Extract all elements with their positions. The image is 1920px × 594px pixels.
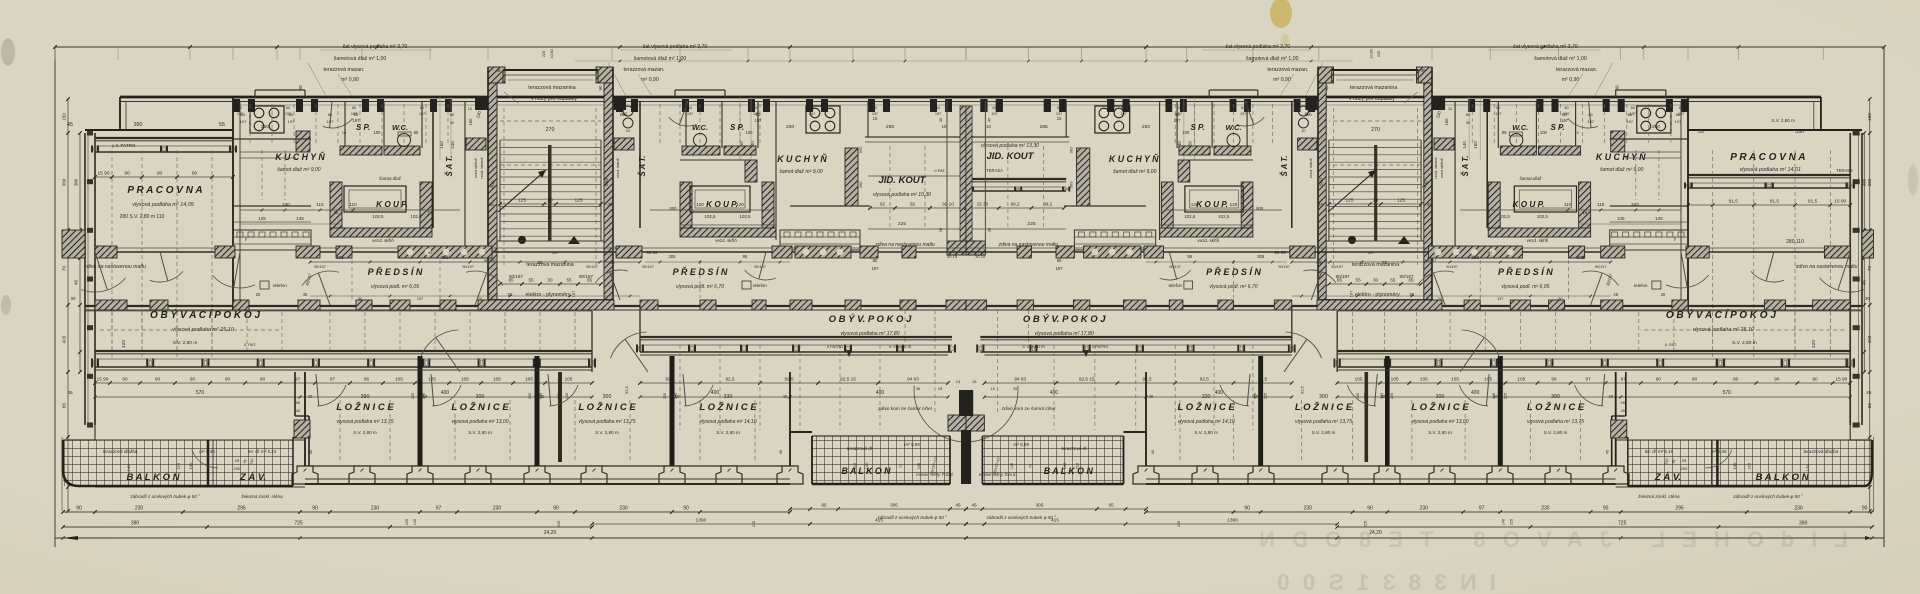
- svg-text:55: 55: [528, 278, 534, 283]
- svg-text:125: 125: [518, 198, 526, 204]
- svg-text:140: 140: [674, 393, 678, 399]
- svg-text:140: 140: [1805, 464, 1810, 471]
- svg-text:94 93: 94 93: [1014, 377, 1026, 382]
- svg-text:35: 35: [1013, 387, 1017, 391]
- svg-text:TERASA: TERASA: [1836, 168, 1853, 173]
- svg-text:P R A C O V N A: P R A C O V N A: [1730, 152, 1805, 163]
- svg-text:15: 15: [990, 386, 995, 391]
- svg-text:vlysová podlaha m² 25,10: vlysová podlaha m² 25,10: [172, 327, 233, 333]
- svg-text:90/197: 90/197: [586, 265, 598, 269]
- svg-text:P Ř E D S Í N: P Ř E D S Í N: [368, 266, 423, 277]
- svg-text:90: 90: [225, 377, 231, 382]
- svg-text:110: 110: [349, 202, 357, 207]
- svg-text:y II. PATRO: y II. PATRO: [112, 143, 136, 148]
- svg-text:115: 115: [316, 202, 324, 207]
- svg-text:140: 140: [1492, 393, 1496, 399]
- svg-text:L O Ž N I C E: L O Ž N I C E: [578, 401, 636, 413]
- svg-text:45: 45: [67, 390, 73, 396]
- svg-text:200: 200: [1681, 466, 1688, 471]
- svg-text:45: 45: [1621, 409, 1625, 413]
- svg-text:15: 15: [956, 379, 961, 384]
- svg-text:70: 70: [1867, 266, 1872, 272]
- svg-text:102,5: 102,5: [373, 214, 385, 219]
- svg-text:IN3831S00: IN3831S00: [1264, 569, 1496, 594]
- svg-text:telefon: telefon: [1168, 283, 1182, 288]
- svg-text:225: 225: [405, 519, 409, 525]
- svg-text:285: 285: [1040, 124, 1048, 130]
- svg-text:200: 200: [234, 466, 241, 471]
- svg-text:90/197: 90/197: [314, 265, 326, 269]
- svg-text:80: 80: [450, 112, 455, 117]
- svg-text:S.V. 2,80 m: S.V. 2,80 m: [1732, 340, 1757, 346]
- svg-text:10: 10: [342, 130, 347, 135]
- svg-text:80: 80: [873, 258, 878, 263]
- svg-text:65: 65: [609, 260, 615, 265]
- svg-text:400: 400: [711, 390, 720, 396]
- svg-text:140: 140: [1732, 462, 1737, 469]
- svg-text:560: 560: [604, 178, 610, 186]
- svg-text:90: 90: [598, 85, 603, 91]
- svg-text:45: 45: [778, 449, 783, 454]
- svg-text:92,5: 92,5: [1299, 385, 1304, 394]
- svg-text:L O Ž N I C E: L O Ž N I C E: [699, 401, 757, 413]
- svg-text:S P.: S P.: [356, 123, 370, 132]
- svg-text:vezd. skříň: vezd. skříň: [1527, 238, 1549, 243]
- svg-text:45: 45: [488, 202, 494, 207]
- svg-text:90/197: 90/197: [1331, 265, 1343, 269]
- svg-text:300: 300: [1319, 394, 1328, 400]
- svg-text:65: 65: [1408, 278, 1414, 283]
- svg-text:305: 305: [336, 255, 344, 260]
- svg-text:135: 135: [296, 216, 304, 221]
- svg-text:ter. dl. m² 5,15: ter. dl. m² 5,15: [1645, 449, 1674, 454]
- svg-text:230: 230: [619, 506, 628, 512]
- svg-text:140: 140: [188, 462, 193, 469]
- svg-text:30 15: 30 15: [947, 254, 958, 259]
- svg-text:40: 40: [308, 394, 313, 399]
- svg-text:v hozy pro odpadky: v hozy pro odpadky: [1349, 96, 1395, 102]
- svg-text:225: 225: [1746, 462, 1751, 469]
- svg-text:140: 140: [1356, 393, 1360, 399]
- svg-text:vlysová podlaha m² 14,10: vlysová podlaha m² 14,10: [1178, 419, 1235, 425]
- svg-text:B A L K O N: B A L K O N: [127, 472, 181, 483]
- svg-text:m² 5,45: m² 5,45: [1711, 449, 1727, 454]
- svg-text:97: 97: [330, 377, 336, 382]
- svg-text:terazzová dl.: terazzová dl.: [1061, 446, 1087, 451]
- svg-text:45: 45: [1582, 210, 1588, 215]
- svg-text:125: 125: [1655, 216, 1663, 221]
- svg-text:250: 250: [1142, 124, 1150, 130]
- svg-text:197: 197: [687, 112, 693, 116]
- svg-text:šamot dlaž m² 9,00: šamot dlaž m² 9,00: [1113, 169, 1156, 175]
- svg-text:100: 100: [1540, 130, 1548, 135]
- svg-text:92: 92: [910, 202, 916, 207]
- svg-text:725: 725: [294, 521, 303, 527]
- svg-text:S.V. 2,80 m: S.V. 2,80 m: [1312, 430, 1336, 435]
- svg-text:rezd. latríně: rezd. latríně: [479, 157, 484, 179]
- svg-text:96: 96: [1551, 377, 1557, 382]
- svg-text:102,5: 102,5: [740, 214, 752, 219]
- svg-text:80: 80: [1466, 112, 1471, 117]
- svg-text:105: 105: [1355, 377, 1363, 382]
- svg-text:45: 45: [1613, 292, 1618, 297]
- svg-text:305: 305: [1577, 255, 1585, 260]
- svg-text:vezd. skříň: vezd. skříň: [715, 238, 737, 243]
- svg-text:105: 105: [1420, 377, 1428, 382]
- svg-text:230: 230: [1304, 506, 1313, 512]
- svg-text:L O Ž N I C E: L O Ž N I C E: [1295, 401, 1353, 413]
- svg-text:380: 380: [74, 178, 79, 186]
- svg-text:80: 80: [428, 251, 432, 255]
- svg-text:90: 90: [76, 506, 82, 512]
- svg-text:90: 90: [1692, 377, 1698, 382]
- svg-text:90/197: 90/197: [1169, 265, 1181, 269]
- svg-text:45: 45: [74, 280, 79, 285]
- svg-text:230: 230: [1420, 506, 1429, 512]
- svg-text:K U C H Y Ň: K U C H Y Ň: [777, 153, 827, 164]
- svg-text:šamot dlaž m² 9,00: šamot dlaž m² 9,00: [1600, 167, 1643, 173]
- svg-text:telefon: telefon: [753, 283, 767, 288]
- svg-text:45: 45: [607, 202, 613, 207]
- svg-text:102,5: 102,5: [705, 214, 717, 219]
- svg-text:zábradlí z ocelových trubek φ: zábradlí z ocelových trubek φ 50 ˜: [129, 494, 200, 499]
- svg-text:285: 285: [886, 124, 894, 130]
- svg-text:92 10: 92 10: [942, 202, 954, 207]
- svg-text:60: 60: [328, 112, 333, 117]
- svg-text:120: 120: [1191, 202, 1199, 207]
- svg-text:197: 197: [240, 119, 247, 124]
- svg-text:m² 5,85: m² 5,85: [1013, 442, 1029, 447]
- svg-text:10: 10: [942, 124, 947, 129]
- svg-text:železná zoskl. stěna: železná zoskl. stěna: [240, 494, 283, 499]
- svg-text:230: 230: [1794, 506, 1803, 512]
- svg-text:K O U P.: K O U P.: [376, 200, 408, 209]
- svg-text:91,5: 91,5: [1770, 199, 1780, 205]
- svg-text:šamotová dlaž m² 1,00: šamotová dlaž m² 1,00: [1534, 56, 1587, 62]
- svg-text:225: 225: [557, 393, 561, 399]
- svg-text:992: 992: [858, 146, 863, 153]
- svg-text:TERASA: TERASA: [986, 168, 1003, 173]
- svg-text:vlysová podlaha m² 13,00: vlysová podlaha m² 13,00: [452, 419, 509, 425]
- svg-text:zdivo kom ze šamot cihel: zdivo kom ze šamot cihel: [877, 406, 933, 412]
- svg-text:10: 10: [468, 106, 473, 111]
- svg-text:197: 197: [1497, 297, 1503, 301]
- svg-text:225: 225: [557, 521, 561, 527]
- svg-text:560: 560: [1319, 178, 1325, 186]
- svg-text:390: 390: [134, 122, 143, 128]
- svg-text:197: 197: [288, 119, 295, 124]
- svg-text:90/197: 90/197: [642, 265, 654, 269]
- svg-text:zdivo na nastavenou maltu: zdivo na nastavenou maltu: [83, 264, 146, 270]
- svg-text:10: 10: [986, 124, 991, 129]
- svg-text:390: 390: [131, 521, 140, 527]
- svg-text:92,5: 92,5: [1142, 377, 1152, 382]
- svg-text:45: 45: [938, 117, 943, 122]
- svg-text:300: 300: [603, 394, 612, 400]
- svg-text:90/197: 90/197: [484, 258, 497, 263]
- svg-text:60: 60: [936, 106, 940, 110]
- svg-text:L O Ž N I C E: L O Ž N I C E: [1527, 401, 1585, 413]
- svg-text:992: 992: [1068, 146, 1073, 153]
- svg-text:25: 25: [235, 458, 240, 463]
- svg-text:60: 60: [1564, 106, 1568, 110]
- svg-text:terazzová mazanina: terazzová mazanina: [526, 262, 573, 268]
- svg-text:100: 100: [1182, 130, 1190, 135]
- svg-text:45: 45: [955, 503, 961, 508]
- svg-text:K O U P.: K O U P.: [1513, 200, 1545, 209]
- svg-text:šamotová dlaž m² 1,00: šamotová dlaž m² 1,00: [1246, 56, 1299, 62]
- svg-text:S.V. 2,80 m: S.V. 2,80 m: [1428, 430, 1452, 435]
- svg-text:L O Ž N I C E: L O Ž N I C E: [1178, 401, 1236, 413]
- svg-text:K U C H Y Ň: K U C H Y Ň: [1596, 151, 1646, 162]
- svg-text:96: 96: [364, 377, 370, 382]
- svg-text:95 65: 95 65: [647, 250, 659, 255]
- svg-text:terazzová dlažba: terazzová dlažba: [103, 449, 138, 454]
- svg-text:L O Ž N I C E: L O Ž N I C E: [1411, 401, 1469, 413]
- svg-text:60: 60: [873, 106, 877, 110]
- svg-text:230: 230: [493, 506, 502, 512]
- svg-text:S.V. 2,80 m: S.V. 2,80 m: [353, 430, 377, 435]
- svg-text:30: 30: [71, 296, 76, 301]
- svg-text:390: 390: [1551, 394, 1560, 400]
- svg-text:197: 197: [991, 112, 997, 116]
- svg-text:60: 60: [1631, 106, 1635, 110]
- svg-text:225: 225: [542, 51, 546, 57]
- svg-text:55: 55: [1698, 129, 1704, 135]
- svg-text:90: 90: [124, 171, 130, 177]
- svg-text:15: 15: [938, 386, 943, 391]
- svg-text:102,5: 102,5: [1499, 214, 1511, 219]
- svg-text:Š A T.: Š A T.: [445, 156, 454, 177]
- svg-text:45: 45: [67, 122, 73, 128]
- svg-text:elektro - plynoměry: elektro - plynoměry: [525, 292, 570, 298]
- svg-text:300: 300: [476, 394, 485, 400]
- svg-text:100: 100: [746, 130, 754, 135]
- svg-text:95: 95: [537, 260, 543, 265]
- svg-text:105: 105: [565, 377, 573, 382]
- svg-text:55: 55: [566, 278, 572, 283]
- svg-text:S.V. 2,80 m: S.V. 2,80 m: [468, 430, 492, 435]
- svg-text:šat vlysová podlaha m² 3,70: šat vlysová podlaha m² 3,70: [643, 44, 708, 50]
- svg-text:20: 20: [547, 198, 553, 204]
- svg-text:15: 15: [873, 116, 878, 121]
- svg-text:400: 400: [1215, 390, 1224, 396]
- svg-text:60: 60: [352, 106, 356, 110]
- svg-text:85: 85: [414, 130, 419, 135]
- svg-text:24,20: 24,20: [544, 530, 557, 536]
- svg-text:140: 140: [1010, 463, 1014, 469]
- svg-text:90: 90: [1733, 377, 1739, 382]
- svg-text:197: 197: [426, 208, 431, 215]
- svg-text:45: 45: [987, 117, 992, 122]
- svg-text:160: 160: [468, 118, 473, 126]
- svg-text:65: 65: [821, 503, 827, 508]
- svg-text:225: 225: [1390, 393, 1394, 399]
- svg-text:60: 60: [241, 112, 246, 117]
- svg-text:II. PAT.: II. PAT.: [244, 342, 256, 347]
- svg-text:135: 135: [1617, 216, 1625, 221]
- svg-text:197: 197: [1626, 119, 1633, 124]
- svg-text:O B Ý V. P O K O J: O B Ý V. P O K O J: [1023, 314, 1106, 325]
- svg-text:LIdOHEL JAVO8 TE8ODN: LIdOHEL JAVO8 TE8ODN: [1242, 527, 1848, 552]
- svg-text:25: 25: [1682, 458, 1687, 463]
- svg-text:90: 90: [312, 506, 318, 512]
- svg-text:197: 197: [1675, 119, 1682, 124]
- svg-text:295: 295: [1675, 506, 1684, 512]
- svg-text:45: 45: [303, 292, 308, 297]
- svg-text:ter. dl. m² 5,15: ter. dl. m² 5,15: [248, 449, 277, 454]
- svg-text:10: 10: [626, 128, 631, 133]
- svg-text:S P.: S P.: [1190, 123, 1204, 132]
- svg-text:S.V. 2,80 m: S.V. 2,80 m: [1544, 430, 1568, 435]
- svg-text:420: 420: [1867, 335, 1872, 343]
- svg-text:10,80: 10,80: [1370, 49, 1374, 59]
- svg-text:W.C.: W.C.: [1225, 123, 1241, 132]
- svg-text:65: 65: [587, 278, 593, 283]
- svg-text:80: 80: [289, 112, 294, 117]
- svg-text:šamotová dlaž m² 1,00: šamotová dlaž m² 1,00: [334, 56, 387, 62]
- svg-text:250: 250: [261, 124, 269, 130]
- svg-text:JID. KOUT: JID. KOUT: [879, 175, 927, 186]
- svg-text:305: 305: [1257, 254, 1265, 259]
- svg-text:125: 125: [258, 216, 266, 221]
- svg-text:95: 95: [1620, 400, 1625, 405]
- svg-text:90/197: 90/197: [1278, 265, 1290, 269]
- svg-text:197: 197: [327, 119, 334, 124]
- svg-text:šamotová dlaž m² 1,00: šamotová dlaž m² 1,00: [634, 56, 687, 62]
- svg-text:zábradlí z ocelových trubek φ: zábradlí z ocelových trubek φ 50 ˜: [1732, 494, 1803, 499]
- svg-text:II. PAT.: II. PAT.: [1665, 342, 1677, 347]
- svg-text:570: 570: [196, 390, 205, 396]
- svg-text:225: 225: [1177, 521, 1181, 527]
- svg-text:rezd. šatně: rezd. šatně: [1308, 157, 1313, 178]
- svg-text:140: 140: [1501, 519, 1505, 525]
- svg-text:vlysová podlaha m² 13,00: vlysová podlaha m² 13,00: [1412, 419, 1469, 425]
- svg-text:90: 90: [1615, 85, 1620, 91]
- svg-text:10,80: 10,80: [550, 49, 554, 59]
- svg-text:65: 65: [1316, 260, 1322, 265]
- svg-text:terazzová mazan.: terazzová mazan.: [1556, 67, 1597, 73]
- svg-text:15 90: 15 90: [1836, 377, 1848, 382]
- svg-text:230: 230: [1541, 506, 1550, 512]
- svg-text:S.V. 2,80 m: S.V. 2,80 m: [595, 430, 619, 435]
- svg-text:197: 197: [935, 112, 941, 116]
- svg-text:S P.: S P.: [1550, 123, 1564, 132]
- svg-text:vezd. skříň: vezd. skříň: [372, 238, 394, 243]
- svg-text:225: 225: [411, 393, 415, 399]
- svg-text:vlysová podlaha m² 14,05: vlysová podlaha m² 14,05: [132, 202, 194, 208]
- svg-text:vlysová podlaha m² 13,75: vlysová podlaha m² 13,75: [337, 419, 394, 425]
- svg-text:340: 340: [1631, 202, 1639, 207]
- svg-text:30: 30: [1373, 278, 1379, 283]
- svg-text:vlysová podl. m² 6,05: vlysová podl. m² 6,05: [1501, 284, 1549, 290]
- svg-text:vlysová podlaha m² 13,75: vlysová podlaha m² 13,75: [1295, 419, 1352, 425]
- svg-text:60: 60: [1676, 112, 1681, 117]
- svg-text:terazzová mazanina: terazzová mazanina: [528, 85, 575, 91]
- svg-text:30: 30: [1865, 296, 1870, 301]
- svg-text:65: 65: [1109, 503, 1115, 508]
- svg-text:150: 150: [1867, 113, 1872, 121]
- svg-text:225: 225: [528, 393, 532, 399]
- svg-text:110: 110: [1564, 202, 1572, 207]
- svg-text:L O Ž N I C E: L O Ž N I C E: [336, 401, 394, 413]
- svg-text:zdiva na nastavenou maltu: zdiva na nastavenou maltu: [998, 242, 1059, 248]
- svg-text:105: 105: [395, 377, 403, 382]
- svg-text:90/197: 90/197: [1424, 258, 1437, 263]
- svg-text:97: 97: [1585, 377, 1591, 382]
- svg-text:92,5 15: 92,5 15: [840, 377, 856, 382]
- svg-text:60: 60: [1562, 112, 1567, 117]
- svg-text:zdiva na nastavenou maltu: zdiva na nastavenou maltu: [874, 242, 935, 248]
- svg-text:90: 90: [1774, 377, 1780, 382]
- svg-text:rezd. šatně: rezd. šatně: [615, 157, 620, 178]
- svg-text:160: 160: [1305, 112, 1312, 117]
- svg-text:91,5: 91,5: [1729, 199, 1739, 205]
- svg-text:60: 60: [286, 106, 290, 110]
- svg-text:15 30: 15 30: [977, 202, 989, 207]
- svg-text:95 65: 95 65: [1275, 250, 1287, 255]
- svg-text:telefon: telefon: [1634, 283, 1648, 288]
- svg-text:90: 90: [122, 377, 128, 382]
- svg-text:197: 197: [1561, 118, 1569, 123]
- svg-text:197: 197: [1240, 112, 1246, 116]
- svg-text:97: 97: [1479, 506, 1485, 512]
- svg-text:160: 160: [1444, 118, 1449, 126]
- svg-text:105: 105: [428, 377, 436, 382]
- svg-text:30: 30: [938, 227, 943, 232]
- svg-text:225: 225: [752, 521, 756, 527]
- svg-text:20: 20: [1661, 292, 1666, 297]
- svg-text:železná zoskl. stěna: železná zoskl. stěna: [1637, 494, 1680, 499]
- svg-text:II PAT.: II PAT.: [934, 168, 945, 173]
- svg-text:Z Á V.: Z Á V.: [239, 472, 266, 483]
- svg-text:90: 90: [298, 85, 303, 91]
- svg-text:elektro - plynoměry: elektro - plynoměry: [1355, 292, 1400, 298]
- svg-text:55: 55: [219, 122, 225, 128]
- svg-text:terazzová mazan.: terazzová mazan.: [324, 67, 365, 73]
- svg-text:140: 140: [539, 393, 543, 399]
- svg-text:150: 150: [1473, 141, 1478, 149]
- svg-text:šamot.dlaž: šamot.dlaž: [1520, 176, 1543, 181]
- svg-text:197: 197: [1368, 251, 1374, 255]
- svg-text:O B Ý V A C Í P O K O J: O B Ý V A C Í P O K O J: [150, 308, 260, 321]
- svg-text:55: 55: [1390, 278, 1396, 283]
- svg-text:vlysová podlaha m² 13,75: vlysová podlaha m² 13,75: [579, 419, 636, 425]
- svg-text:225: 225: [1363, 393, 1367, 399]
- svg-text:65: 65: [508, 278, 514, 283]
- svg-text:45: 45: [1866, 390, 1872, 396]
- svg-text:315: 315: [1471, 255, 1479, 260]
- svg-text:vlysová podlaha m² 10,30: vlysová podlaha m² 10,30: [873, 192, 931, 198]
- svg-text:420: 420: [1811, 340, 1817, 348]
- svg-text:150: 150: [62, 113, 67, 121]
- svg-text:monier stěny 7cm tl.: monier stěny 7cm tl.: [916, 472, 953, 477]
- svg-text:105: 105: [525, 377, 533, 382]
- svg-text:K U C H Y Ň: K U C H Y Ň: [1109, 153, 1159, 164]
- svg-text:90: 90: [192, 171, 198, 177]
- svg-text:zábradlí z ocelových trubek φ: zábradlí z ocelových trubek φ 50 ˜: [986, 515, 1057, 520]
- svg-text:380: 380: [62, 178, 67, 186]
- svg-text:390: 390: [1795, 129, 1804, 135]
- svg-text:92,5: 92,5: [1200, 377, 1210, 382]
- svg-text:W.C.: W.C.: [692, 123, 708, 132]
- svg-text:W.C.: W.C.: [1512, 123, 1528, 132]
- svg-text:125: 125: [1397, 198, 1405, 204]
- svg-text:45: 45: [1605, 449, 1610, 454]
- svg-text:97: 97: [436, 506, 442, 512]
- svg-text:60: 60: [1241, 106, 1245, 110]
- svg-text:420: 420: [62, 335, 67, 343]
